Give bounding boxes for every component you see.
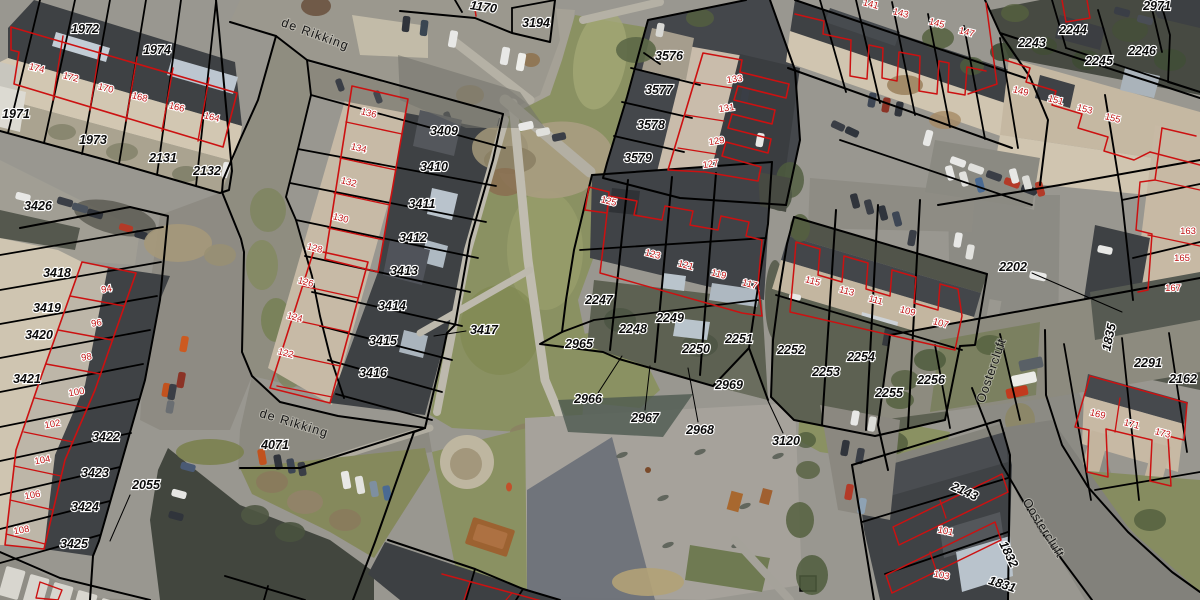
svg-text:2251: 2251 (724, 332, 753, 346)
svg-text:2253: 2253 (811, 365, 840, 379)
svg-text:2965: 2965 (564, 337, 594, 351)
svg-text:2243: 2243 (1017, 36, 1046, 50)
svg-text:3416: 3416 (359, 366, 388, 380)
svg-text:2967: 2967 (630, 411, 660, 425)
svg-text:3417: 3417 (470, 323, 499, 337)
svg-text:167: 167 (1165, 283, 1181, 294)
svg-text:2162: 2162 (1168, 372, 1197, 386)
svg-text:129: 129 (708, 135, 725, 148)
svg-text:3194: 3194 (522, 16, 550, 30)
svg-text:3424: 3424 (71, 500, 99, 514)
svg-text:3120: 3120 (772, 434, 800, 448)
svg-text:4071: 4071 (260, 438, 289, 452)
svg-text:3421: 3421 (13, 372, 41, 386)
svg-text:3426: 3426 (24, 199, 53, 213)
svg-text:2250: 2250 (681, 342, 710, 356)
svg-text:94: 94 (100, 283, 112, 296)
svg-text:1971: 1971 (2, 107, 30, 121)
svg-text:2248: 2248 (618, 322, 647, 336)
svg-text:2249: 2249 (655, 311, 684, 325)
svg-text:3419: 3419 (33, 301, 61, 315)
svg-text:1973: 1973 (79, 133, 107, 147)
svg-text:3577: 3577 (645, 83, 674, 97)
svg-text:3578: 3578 (637, 118, 665, 132)
svg-text:2968: 2968 (685, 423, 714, 437)
svg-text:96: 96 (90, 317, 102, 330)
svg-text:2246: 2246 (1127, 44, 1157, 58)
svg-text:165: 165 (1174, 253, 1190, 264)
svg-text:3422: 3422 (92, 430, 120, 444)
svg-text:2055: 2055 (131, 478, 161, 492)
svg-text:3414: 3414 (378, 299, 406, 313)
svg-text:1974: 1974 (143, 43, 171, 57)
svg-text:3418: 3418 (43, 266, 71, 280)
svg-text:2131: 2131 (148, 151, 177, 165)
svg-text:3579: 3579 (624, 151, 652, 165)
svg-text:3576: 3576 (655, 49, 684, 63)
svg-text:2244: 2244 (1058, 23, 1087, 37)
svg-text:1972: 1972 (71, 22, 99, 36)
svg-text:2252: 2252 (776, 343, 805, 357)
svg-text:3423: 3423 (81, 466, 109, 480)
svg-text:133: 133 (726, 73, 743, 86)
svg-text:3420: 3420 (25, 328, 53, 342)
svg-text:2256: 2256 (916, 373, 946, 387)
svg-text:2202: 2202 (998, 260, 1027, 274)
svg-text:2245: 2245 (1084, 54, 1114, 68)
svg-text:2254: 2254 (846, 350, 875, 364)
svg-text:131: 131 (718, 102, 735, 115)
svg-text:3411: 3411 (409, 197, 436, 211)
svg-text:2966: 2966 (573, 392, 603, 406)
svg-text:2255: 2255 (874, 386, 904, 400)
svg-text:2247: 2247 (584, 293, 614, 307)
svg-text:3425: 3425 (60, 537, 89, 551)
svg-text:2971: 2971 (1142, 0, 1171, 13)
svg-text:3409: 3409 (430, 124, 458, 138)
svg-text:3415: 3415 (369, 334, 398, 348)
svg-text:2291: 2291 (1133, 356, 1162, 370)
svg-text:127: 127 (702, 158, 719, 171)
svg-text:98: 98 (80, 351, 92, 364)
svg-text:3413: 3413 (390, 264, 418, 278)
svg-text:2969: 2969 (714, 378, 743, 392)
svg-text:3412: 3412 (399, 231, 427, 245)
svg-text:3410: 3410 (420, 160, 448, 174)
svg-text:2132: 2132 (192, 164, 221, 178)
svg-text:163: 163 (1180, 226, 1196, 237)
